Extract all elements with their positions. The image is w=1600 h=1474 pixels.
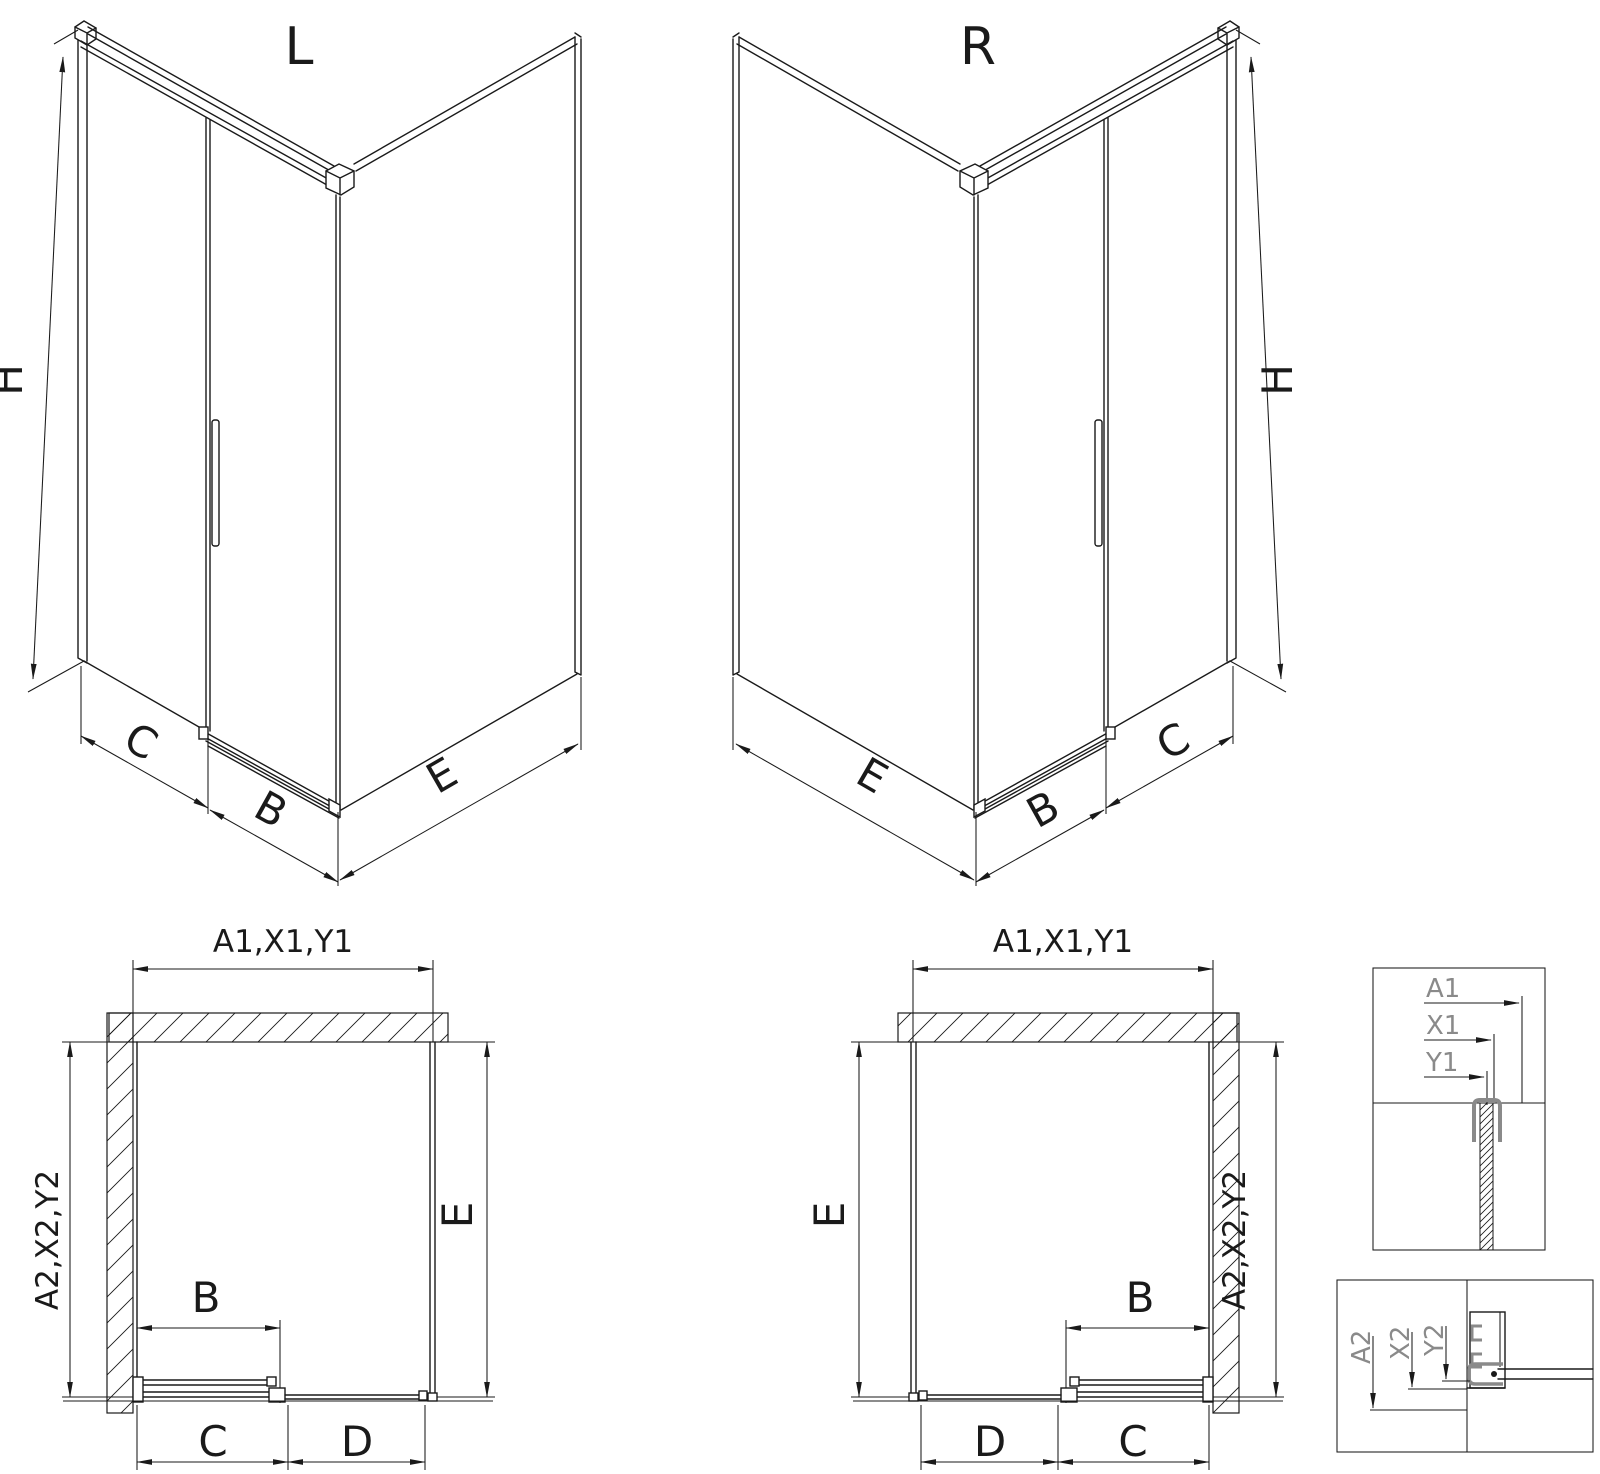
detail-x2-label: X2 — [1386, 1326, 1416, 1360]
wall-hatch-side-left-plan — [107, 1013, 133, 1413]
plan-left-seg-d: D — [341, 1417, 373, 1466]
wall-hatch-top-right-plan — [898, 1013, 1237, 1042]
drawing-canvas: L H C B E R H C B E A1,X1,Y1 A2,X2,Y2 B … — [0, 0, 1600, 1474]
detail-a2-label: A2 — [1347, 1330, 1377, 1364]
dim-height-right: H — [1253, 364, 1302, 396]
plan-left-top-width: A1,X1,Y1 — [213, 924, 353, 960]
isometric-view-right: R H C B E — [733, 17, 1302, 886]
detail-box-bottom: A2 X2 Y2 — [1337, 1280, 1593, 1452]
detail-a1-label: A1 — [1426, 974, 1460, 1004]
plan-right-seg-c: C — [1118, 1417, 1147, 1466]
dim-side-left: E — [418, 748, 465, 804]
plan-left-side: E — [433, 1202, 482, 1229]
plan-view-left: A1,X1,Y1 A2,X2,Y2 B C D E — [30, 924, 495, 1470]
shower-enclosure-technical-drawing: L H C B E R H C B E A1,X1,Y1 A2,X2,Y2 B … — [0, 0, 1600, 1474]
dim-fixed-right: C — [1148, 713, 1197, 770]
plan-left-depth: A2,X2,Y2 — [30, 1170, 66, 1310]
detail-box-top: A1 X1 Y1 — [1373, 968, 1545, 1250]
variant-left-label: L — [285, 17, 314, 77]
detail-y1-label: Y1 — [1425, 1048, 1458, 1078]
detail-y2-label: Y2 — [1420, 1324, 1450, 1357]
dim-side-right: E — [849, 748, 896, 804]
wall-hatch-top-left-plan — [109, 1013, 448, 1042]
plan-right-depth: A2,X2,Y2 — [1217, 1170, 1253, 1310]
plan-view-right: A1,X1,Y1 A2,X2,Y2 B D C E — [805, 924, 1284, 1470]
plan-right-door: B — [1126, 1273, 1155, 1322]
plan-right-side: E — [805, 1202, 854, 1229]
variant-right-label: R — [960, 17, 996, 77]
plan-right-seg-d: D — [974, 1417, 1006, 1466]
isometric-view-left: L H C B E — [0, 17, 581, 886]
detail-x1-label: X1 — [1426, 1011, 1460, 1041]
plan-left-door: B — [192, 1273, 221, 1322]
plan-right-top-width: A1,X1,Y1 — [993, 924, 1133, 960]
dim-fixed-left: C — [116, 713, 165, 770]
dim-height-left: H — [0, 364, 32, 396]
plan-left-seg-c: C — [198, 1417, 227, 1466]
